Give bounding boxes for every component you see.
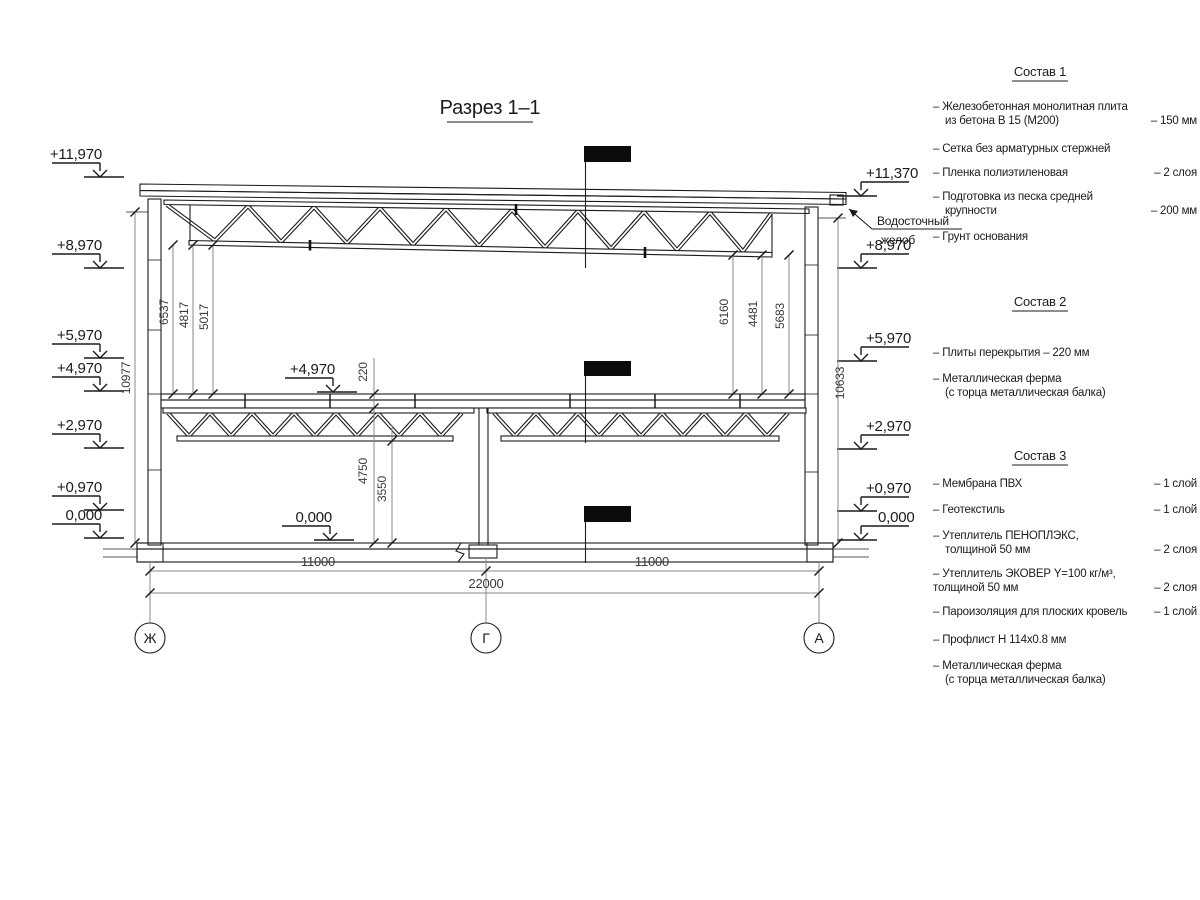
title-text: Разрез 1–1: [440, 97, 541, 119]
note-s1-i3: – Пленка полиэтиленовая: [933, 167, 1068, 179]
section-flag-bottom: [584, 506, 631, 522]
note-s3-i6: – Профлист Н 114х0.8 мм: [933, 634, 1066, 646]
elev-right-11370: +11,370: [866, 165, 918, 182]
note-s1-i5: – Грунт основания: [933, 231, 1028, 243]
dim-span-left: 11000: [301, 554, 335, 569]
right-wall: [805, 207, 818, 545]
section-drawing: Разрез 1–1: [0, 0, 1200, 900]
floor-slab-plates: [161, 400, 805, 408]
drawing-canvas: Разрез 1–1: [0, 0, 1200, 900]
dim-span-right: 11000: [635, 554, 669, 569]
slab-concrete: [137, 543, 833, 549]
grid-label-a: А: [814, 630, 824, 646]
dim-height-right: 10633: [833, 366, 847, 399]
note-s3-v5: – 1 слой: [1154, 606, 1197, 618]
note-s3-i7b: (с торца металлическая балка): [945, 674, 1106, 686]
sand-bed: [137, 549, 833, 562]
elev-right-5970: +5,970: [866, 330, 911, 347]
elev-right-0000: 0,000: [878, 509, 915, 526]
section-flag-top: [584, 146, 631, 162]
dim-ir2: 5683: [773, 303, 787, 329]
elevation-marks-left: +11,970 +8,970 +5,970 +4,970 +2,970 +0,9…: [50, 146, 124, 538]
elevation-marks-center: +4,970 0,000: [282, 361, 357, 540]
elev-left-11970: +11,970: [50, 146, 102, 163]
note-s3-v3: – 2 слоя: [1154, 544, 1197, 556]
note-s3-i7a: – Металлическая ферма: [933, 660, 1062, 672]
note-s2-title: Состав 2: [1014, 294, 1066, 309]
section-flag-middle: [584, 361, 631, 376]
interior-dims-center: 220 4750 3550: [356, 358, 397, 548]
floor-topping: [161, 394, 805, 400]
note-s3-i4b: толщиной 50 мм: [933, 582, 1019, 594]
elev-center-0000: 0,000: [295, 509, 332, 526]
gutter-label-line1: Водосточный: [877, 214, 949, 228]
note-s1-i4a: – Подготовка из песка средней: [933, 191, 1093, 203]
interior-dims-left: 6537 4817 5017: [157, 241, 218, 399]
dim-slab-220: 220: [356, 362, 370, 382]
dim-ir1: 4481: [746, 301, 760, 327]
note-s1-v3: – 2 слоя: [1154, 167, 1197, 179]
break-mark: [456, 543, 464, 562]
middle-floor: [161, 394, 806, 545]
note-s1-title: Состав 1: [1014, 64, 1066, 79]
dim-il2: 5017: [197, 304, 211, 330]
gutter-label-line2: желоб: [881, 233, 915, 247]
dim-il0: 6537: [157, 299, 171, 325]
grid-label-zh: Ж: [144, 630, 157, 646]
roof-truss: [164, 200, 809, 258]
note-s3-v4: – 2 слоя: [1154, 582, 1197, 594]
floor-truss-left: [163, 408, 474, 441]
dim-3550: 3550: [375, 476, 389, 502]
elev-right-0970: +0,970: [866, 480, 911, 497]
note-s3-v1: – 1 слой: [1154, 478, 1197, 490]
note-s3-i3b: толщиной 50 мм: [945, 544, 1031, 556]
dim-total: 22000: [468, 576, 503, 591]
dim-height-left: 10977: [119, 361, 133, 394]
note-s2-i2b: (с торца металлическая балка): [945, 387, 1106, 399]
left-wall: [148, 199, 161, 545]
column-footing: [469, 545, 497, 558]
note-s3-i4a: – Утеплитель ЭКОВЕР Y=100 кг/м³,: [933, 568, 1116, 580]
bottom-dims: 11000 11000 22000 Ж Г А: [135, 554, 834, 653]
drawing-title: Разрез 1–1: [440, 97, 541, 122]
dim-il1: 4817: [177, 302, 191, 328]
outer-vertical-dims: 10977 10633: [119, 208, 847, 548]
elev-left-2970: +2,970: [57, 417, 102, 434]
note-s3-i3a: – Утеплитель ПЕНОПЛЭКС,: [933, 530, 1079, 542]
note-s1-i1a: – Железобетонная монолитная плита: [933, 101, 1128, 113]
elev-left-0970: +0,970: [57, 479, 102, 496]
note-s1-v1: – 150 мм: [1151, 115, 1197, 127]
elev-left-8970: +8,970: [57, 237, 102, 254]
note-s3-i5: – Пароизоляция для плоских кровель: [933, 606, 1128, 618]
note-s3-v2: – 1 слой: [1154, 504, 1197, 516]
note-s1-i4b: крупности: [945, 205, 997, 217]
note-s2-i2a: – Металлическая ферма: [933, 373, 1062, 385]
elev-left-5970: +5,970: [57, 327, 102, 344]
roof-truss-top-chord: [164, 200, 809, 214]
elev-left-0000: 0,000: [65, 507, 102, 524]
note-s1-i1b: из бетона В 15 (М200): [945, 115, 1059, 127]
interior-dims-right: 6160 4481 5683: [717, 251, 794, 399]
grid-bubbles: Ж Г А: [135, 623, 834, 653]
note-s2-i1: – Плиты перекрытия – 220 мм: [933, 347, 1090, 359]
notes-column: Состав 1 – Железобетонная монолитная пли…: [933, 64, 1197, 686]
floor-truss-right: [487, 408, 806, 441]
dim-ir0: 6160: [717, 299, 731, 325]
note-s3-i2: – Геотекстиль: [933, 504, 1005, 516]
note-s3-i1: – Мембрана ПВХ: [933, 478, 1023, 490]
note-s3-title: Состав 3: [1014, 448, 1066, 463]
dim-4750: 4750: [356, 458, 370, 484]
grid-label-g: Г: [482, 630, 490, 646]
note-s1-i2: – Сетка без арматурных стержней: [933, 143, 1110, 155]
elev-center-4970: +4,970: [290, 361, 335, 378]
elev-right-2970: +2,970: [866, 418, 911, 435]
note-s1-v4: – 200 мм: [1151, 205, 1197, 217]
elev-left-4970: +4,970: [57, 360, 102, 377]
